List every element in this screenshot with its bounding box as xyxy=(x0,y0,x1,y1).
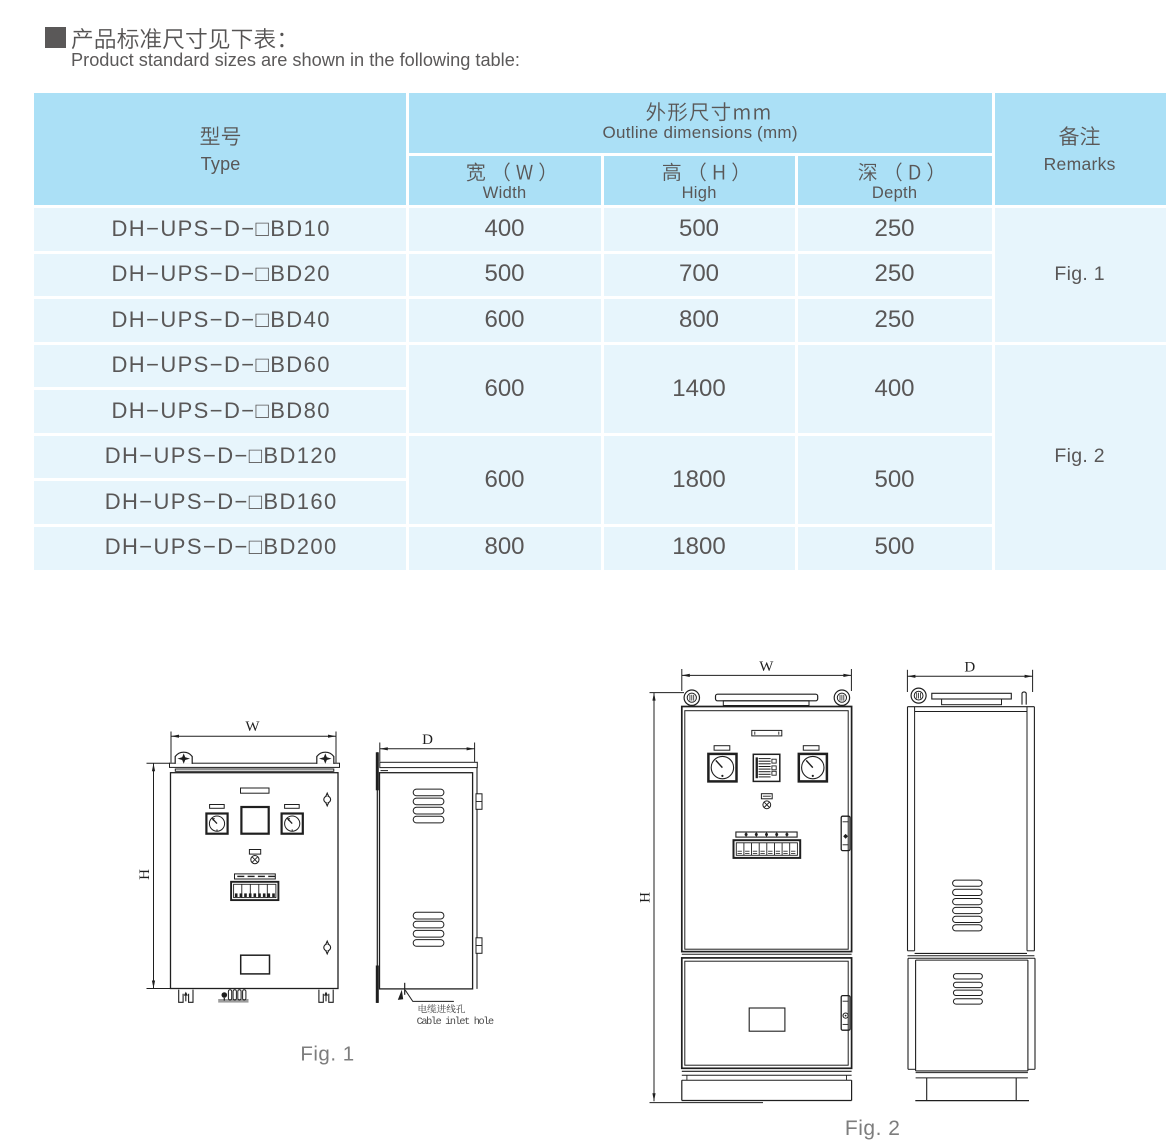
svg-text:D: D xyxy=(964,660,975,676)
svg-text:D: D xyxy=(422,732,433,748)
svg-text:W: W xyxy=(245,719,260,735)
svg-text:Fig. 2: Fig. 2 xyxy=(845,1117,901,1140)
svg-text:H: H xyxy=(638,892,654,903)
svg-text:Cable inlet hole: Cable inlet hole xyxy=(417,1016,495,1028)
svg-text:Fig. 1: Fig. 1 xyxy=(300,1043,354,1066)
svg-text:W: W xyxy=(759,659,774,675)
svg-text:H: H xyxy=(137,869,153,880)
